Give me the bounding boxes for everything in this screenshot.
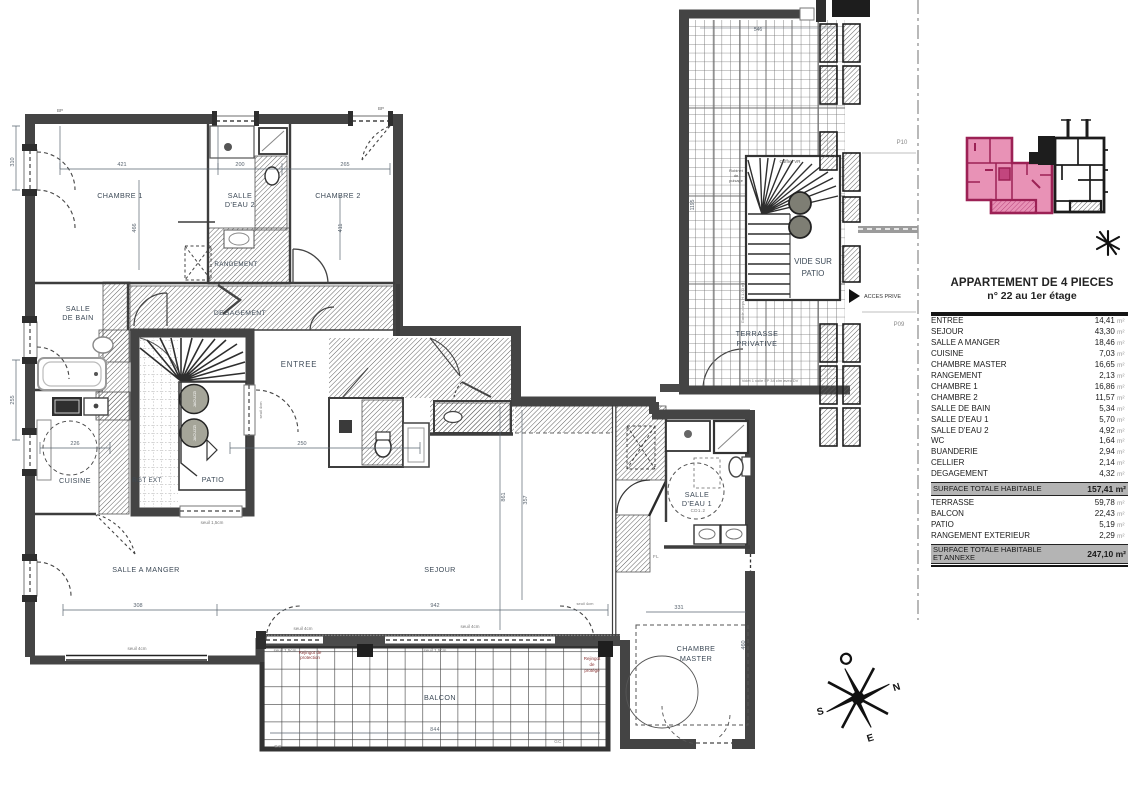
svg-text:P09: P09	[894, 322, 905, 328]
svg-text:Rejingot: Rejingot	[584, 656, 601, 661]
svg-text:S: S	[816, 706, 826, 719]
svg-text:CHAMBRE 2: CHAMBRE 2	[315, 191, 361, 200]
svg-text:200: 200	[235, 162, 244, 168]
svg-text:SALLE: SALLE	[66, 304, 90, 313]
svg-text:JACUZZI: JACUZZI	[192, 425, 197, 441]
svg-text:844: 844	[430, 727, 440, 733]
svg-text:308: 308	[133, 603, 142, 609]
svg-text:seuil 4cm: seuil 4cm	[258, 401, 263, 419]
svg-text:DEGAGEMENT: DEGAGEMENT	[214, 310, 266, 317]
svg-text:460: 460	[741, 640, 747, 649]
svg-text:CUISINE: CUISINE	[59, 476, 91, 485]
svg-text:seuil 1,5cm: seuil 1,5cm	[274, 648, 297, 653]
svg-text:310: 310	[10, 157, 16, 166]
svg-text:TERRASSE: TERRASSE	[736, 329, 779, 338]
svg-text:357: 357	[523, 495, 529, 504]
svg-text:PATIO: PATIO	[802, 269, 825, 278]
svg-text:GC: GC	[274, 744, 282, 749]
svg-text:PATIO: PATIO	[202, 475, 225, 484]
svg-text:411: 411	[338, 224, 344, 233]
svg-text:SALLE A MANGER: SALLE A MANGER	[112, 565, 180, 574]
svg-text:ACCES PRIVE: ACCES PRIVE	[864, 294, 901, 300]
svg-text:250: 250	[297, 441, 306, 447]
svg-text:265: 265	[340, 162, 349, 168]
svg-text:BP: BP	[378, 106, 384, 111]
svg-text:SEJOUR: SEJOUR	[424, 565, 456, 574]
svg-text:N: N	[892, 681, 902, 694]
svg-text:Coffret VR: Coffret VR	[780, 159, 802, 164]
svg-text:P10: P10	[897, 140, 908, 146]
svg-text:CD1.2: CD1.2	[691, 508, 706, 513]
svg-text:E: E	[866, 732, 876, 745]
svg-text:RANGEMENT: RANGEMENT	[214, 261, 257, 268]
svg-text:protégé: protégé	[584, 668, 600, 673]
svg-text:VIDE SUR: VIDE SUR	[794, 257, 832, 266]
svg-text:SALLE: SALLE	[685, 490, 709, 499]
svg-text:CHAMBRE 1: CHAMBRE 1	[97, 191, 143, 200]
svg-text:MASTER: MASTER	[680, 654, 712, 663]
svg-text:seuil 4cm: seuil 4cm	[293, 626, 312, 631]
svg-text:de: de	[589, 662, 595, 667]
svg-text:BALCON: BALCON	[424, 693, 456, 702]
svg-text:255: 255	[10, 395, 16, 404]
svg-text:PRIVATIVE: PRIVATIVE	[737, 339, 778, 348]
svg-text:861: 861	[501, 492, 507, 501]
svg-text:puisage: puisage	[729, 178, 744, 183]
svg-text:CHAMBRE: CHAMBRE	[677, 644, 716, 653]
svg-text:seuil 1,5cm: seuil 1,5cm	[201, 520, 224, 525]
svg-text:226: 226	[70, 441, 79, 447]
svg-text:protection: protection	[300, 655, 320, 660]
svg-text:JACUZZI: JACUZZI	[192, 391, 197, 407]
svg-text:D'EAU 1: D'EAU 1	[682, 499, 712, 508]
svg-text:seuil 4cm: seuil 4cm	[460, 624, 479, 629]
svg-text:D'EAU 2: D'EAU 2	[225, 200, 255, 209]
svg-text:seuil 4cm: seuil 4cm	[127, 646, 146, 651]
svg-text:FL: FL	[653, 554, 659, 559]
svg-text:Garde-corps H 1.00 ml: Garde-corps H 1.00 ml	[740, 283, 745, 324]
svg-text:BP: BP	[57, 108, 63, 113]
svg-text:421: 421	[117, 162, 126, 168]
svg-text:466: 466	[132, 223, 138, 232]
svg-text:GC: GC	[554, 739, 562, 744]
svg-text:DE BAIN: DE BAIN	[62, 313, 94, 322]
svg-text:RGT EXT: RGT EXT	[132, 477, 162, 484]
svg-text:331: 331	[674, 605, 683, 611]
svg-text:SALLE: SALLE	[228, 191, 252, 200]
svg-text:seuil 4cm: seuil 4cm	[577, 601, 595, 606]
svg-text:Volet 1 voile 5P 34 clm avec: Volet 1 voile 5P 34 clm avec DV	[742, 378, 799, 383]
svg-text:seuil 1,5cm: seuil 1,5cm	[424, 648, 447, 653]
svg-text:942: 942	[430, 603, 439, 609]
svg-text:1195: 1195	[690, 199, 696, 210]
svg-text:ENTREE: ENTREE	[281, 360, 317, 369]
